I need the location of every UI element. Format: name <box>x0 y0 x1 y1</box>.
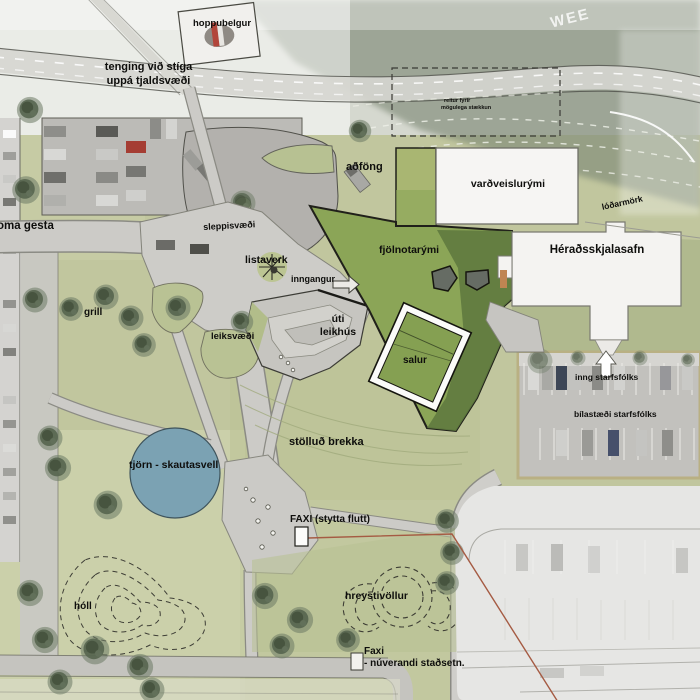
label-entrance: inngangur <box>291 275 335 284</box>
label-archive-building: Héraðsskjalasafn <box>515 244 679 256</box>
label-outdoor-theatre-1: úti <box>308 314 368 325</box>
main-parking-lot <box>455 486 700 700</box>
statue-current-location <box>351 653 363 670</box>
red-car <box>126 141 146 153</box>
label-expansion-2: mögulega stækkun <box>441 106 491 112</box>
label-trail-connection-2: uppá tjaldsvæði <box>86 76 211 88</box>
statue-new-location <box>295 527 308 546</box>
label-storage-room: varðveislurými <box>440 179 576 190</box>
label-outdoor-theatre-2: leikhús <box>308 327 368 338</box>
label-guest-arrival: oma gesta <box>0 220 54 232</box>
label-staff-entrance: inng starfsfólks <box>575 373 638 382</box>
label-staff-parking: bílastæði starfsfólks <box>574 410 657 419</box>
label-pond-ice-rink: tjörn - skautasvell <box>129 460 218 471</box>
label-hill: hóll <box>74 602 92 613</box>
label-grill: grill <box>84 308 102 319</box>
bouncy-pillow <box>178 3 260 66</box>
label-stepped-slope: stölluð brekka <box>289 437 364 449</box>
label-artwork: listaverk <box>245 255 288 266</box>
label-multiuse-space: fjölnotarými <box>379 245 439 256</box>
pond-ice-rink <box>130 428 220 518</box>
label-trail-connection-1: tenging við stíga <box>86 62 211 74</box>
label-statue-current-1: Faxi <box>364 647 384 658</box>
label-statue-new: FAXI (stytta flutt) <box>290 515 370 526</box>
label-play-area: leiksvæði <box>211 332 254 342</box>
label-deliveries: aðföng <box>346 162 383 174</box>
label-fitness-field: hreystivöllur <box>345 591 408 602</box>
label-expansion-1: reitur fyrir <box>444 99 470 105</box>
label-hall: salur <box>403 356 427 367</box>
label-bouncy-pillow: hoppubelgur <box>193 19 251 29</box>
label-statue-current-2: - núverandi staðsetn. <box>364 659 465 670</box>
site-plan: hoppubelgur tenging við stíga uppá tjald… <box>0 0 700 700</box>
